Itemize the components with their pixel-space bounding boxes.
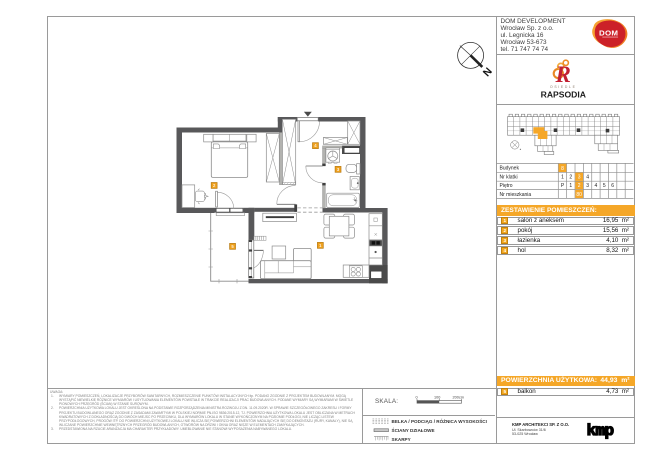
svg-text:3: 3	[586, 183, 589, 189]
svg-text:5: 5	[603, 183, 606, 189]
svg-text:kmp: kmp	[587, 422, 614, 440]
svg-text:2: 2	[569, 175, 572, 181]
svg-text:4: 4	[586, 175, 589, 181]
svg-text:4: 4	[595, 183, 598, 189]
svg-text:RAPSODIA: RAPSODIA	[541, 89, 586, 99]
svg-text:Budynek: Budynek	[500, 166, 520, 172]
svg-text:0: 0	[416, 396, 418, 400]
svg-text:N: N	[481, 65, 495, 79]
svg-text:1: 1	[569, 183, 572, 189]
svg-text:2: 2	[578, 183, 581, 189]
svg-text:Piętro: Piętro	[500, 183, 513, 189]
svg-text:P: P	[561, 183, 565, 189]
svg-text:Nr klatki: Nr klatki	[500, 175, 518, 181]
svg-text:Nr mieszkania: Nr mieszkania	[500, 192, 532, 198]
svg-text:200cm: 200cm	[453, 396, 464, 400]
svg-text:R: R	[555, 62, 571, 87]
svg-text:OSIEDLE: OSIEDLE	[550, 85, 577, 89]
svg-text:6: 6	[611, 183, 614, 189]
svg-text:1: 1	[561, 175, 564, 181]
svg-text:DOM: DOM	[599, 28, 618, 37]
svg-text:8: 8	[561, 166, 564, 172]
svg-text:80: 80	[576, 192, 582, 198]
svg-text:3: 3	[578, 175, 581, 181]
